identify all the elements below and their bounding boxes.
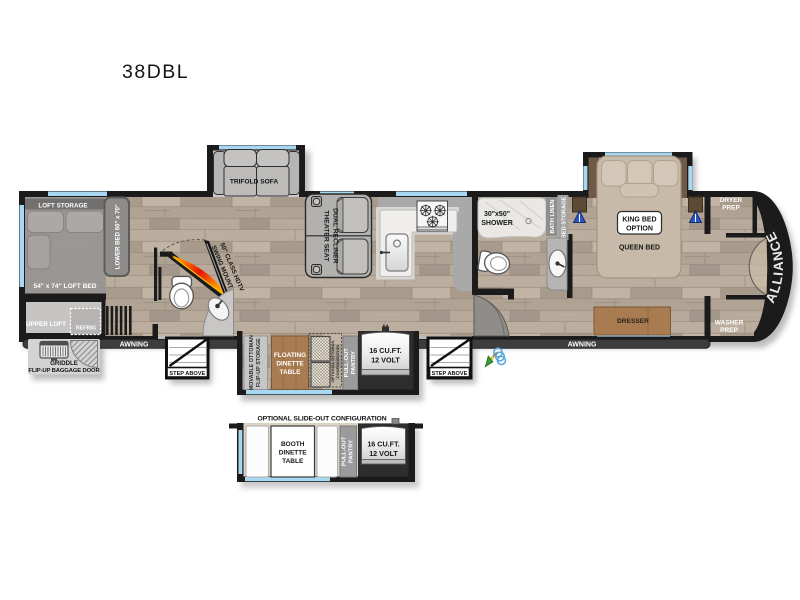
svg-text:PANTRY: PANTRY	[351, 351, 357, 374]
svg-text:SHOWER: SHOWER	[481, 220, 513, 227]
svg-text:54" x 74" LOFT BED: 54" x 74" LOFT BED	[33, 283, 96, 290]
svg-text:16 CU.FT.: 16 CU.FT.	[367, 440, 399, 449]
svg-text:PREP: PREP	[720, 327, 738, 334]
svg-text:GRIDDLE: GRIDDLE	[50, 360, 78, 367]
svg-text:BED STORAGE: BED STORAGE	[562, 196, 568, 238]
svg-text:OPTION: OPTION	[626, 226, 653, 233]
svg-text:FLIP-UP STORAGE: FLIP-UP STORAGE	[256, 338, 262, 387]
svg-text:DINETTE: DINETTE	[279, 450, 307, 457]
svg-text:BATH LINEN: BATH LINEN	[550, 199, 556, 233]
svg-text:TABLE: TABLE	[282, 458, 304, 465]
svg-text:DRYER: DRYER	[720, 197, 743, 204]
svg-text:STEP ABOVE: STEP ABOVE	[432, 371, 468, 377]
svg-text:OPTIONAL SLIDE-OUT CONFIGURATI: OPTIONAL SLIDE-OUT CONFIGURATION	[257, 416, 386, 423]
svg-text:AWNING: AWNING	[120, 342, 149, 349]
svg-text:PREP: PREP	[722, 205, 740, 212]
svg-text:TABLE: TABLE	[280, 369, 302, 376]
svg-text:QUEEN BED: QUEEN BED	[619, 245, 660, 252]
svg-text:12 VOLT: 12 VOLT	[369, 449, 398, 458]
svg-text:MOVABLE OTTOMAN: MOVABLE OTTOMAN	[249, 335, 255, 390]
svg-text:DRESSER: DRESSER	[617, 318, 649, 325]
svg-text:PANTRY: PANTRY	[349, 440, 355, 463]
svg-text:REFRIG: REFRIG	[76, 326, 96, 332]
svg-text:30"x50": 30"x50"	[484, 211, 510, 218]
svg-text:38DBL: 38DBL	[122, 61, 189, 83]
svg-text:PULL-OUT: PULL-OUT	[344, 348, 350, 378]
svg-text:CONFIGURATION: CONFIGURATION	[335, 345, 340, 379]
svg-text:16 CU.FT.: 16 CU.FT.	[369, 346, 401, 355]
svg-text:LOFT STORAGE: LOFT STORAGE	[38, 203, 87, 210]
svg-text:DUAL RECLINER: DUAL RECLINER	[331, 208, 338, 263]
svg-text:FLIP-UP BAGGAGE DOOR: FLIP-UP BAGGAGE DOOR	[28, 368, 100, 374]
svg-text:DINETTE: DINETTE	[276, 361, 304, 368]
svg-text:FLOATING: FLOATING	[274, 352, 306, 359]
svg-text:BOOTH: BOOTH	[281, 441, 305, 448]
svg-text:TRIFOLD SOFA: TRIFOLD SOFA	[230, 179, 279, 186]
svg-text:KING BED: KING BED	[622, 217, 656, 224]
svg-text:WASHER: WASHER	[715, 320, 744, 327]
svg-text:PULL-OUT: PULL-OUT	[342, 436, 348, 466]
svg-text:STEP ABOVE: STEP ABOVE	[169, 371, 205, 377]
svg-text:THEATER SEAT: THEATER SEAT	[322, 210, 329, 262]
svg-text:12 VOLT: 12 VOLT	[371, 356, 400, 365]
svg-text:LOWER BED 60" x 70": LOWER BED 60" x 70"	[114, 204, 121, 269]
svg-text:UPPER LOFT: UPPER LOFT	[26, 321, 66, 328]
svg-text:AWNING: AWNING	[568, 342, 597, 349]
